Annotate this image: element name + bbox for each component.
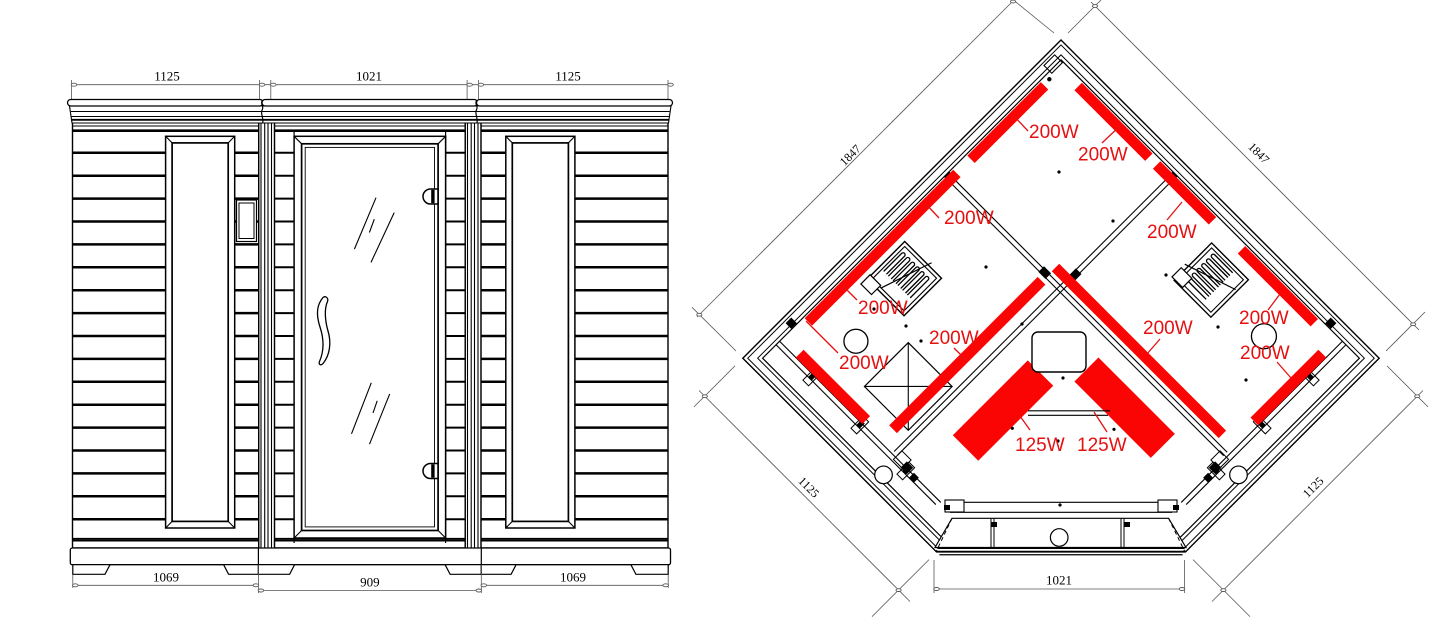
svg-text:200W: 200W: [1147, 222, 1197, 243]
svg-text:1069: 1069: [153, 569, 179, 584]
svg-text:200W: 200W: [1239, 308, 1289, 329]
svg-text:125W: 125W: [1015, 435, 1065, 456]
svg-text:200W: 200W: [944, 208, 994, 229]
svg-text:200W: 200W: [858, 298, 908, 319]
svg-text:1125: 1125: [154, 69, 180, 84]
svg-text:200W: 200W: [1078, 145, 1128, 166]
svg-text:1021: 1021: [356, 69, 382, 84]
svg-text:1021: 1021: [1046, 573, 1072, 588]
svg-text:200W: 200W: [929, 328, 979, 349]
svg-text:1069: 1069: [560, 569, 586, 584]
svg-text:200W: 200W: [839, 353, 889, 374]
svg-text:200W: 200W: [1029, 122, 1079, 143]
svg-text:125W: 125W: [1077, 435, 1127, 456]
svg-text:200W: 200W: [1143, 318, 1193, 339]
svg-text:1125: 1125: [555, 69, 581, 84]
svg-text:200W: 200W: [1240, 343, 1290, 364]
svg-text:909: 909: [360, 575, 380, 590]
